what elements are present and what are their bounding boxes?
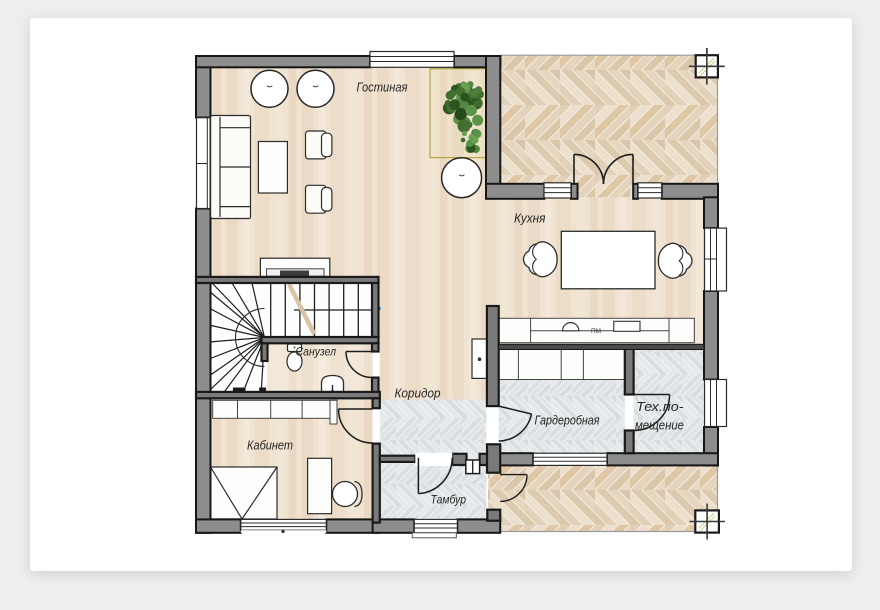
- svg-text:Кухня: Кухня: [514, 212, 546, 226]
- svg-text:Санузел: Санузел: [296, 345, 337, 359]
- svg-text:Гостиная: Гостиная: [357, 80, 408, 95]
- svg-text:Коридор: Коридор: [395, 386, 441, 401]
- svg-text:Кабинет: Кабинет: [247, 438, 293, 453]
- svg-text:Гардеробная: Гардеробная: [535, 414, 600, 428]
- svg-text:Тех.по-: Тех.по-: [636, 400, 684, 414]
- svg-text:ПМ: ПМ: [591, 328, 601, 335]
- svg-text:Тамбур: Тамбур: [431, 493, 467, 507]
- svg-text:мещение: мещение: [635, 419, 684, 433]
